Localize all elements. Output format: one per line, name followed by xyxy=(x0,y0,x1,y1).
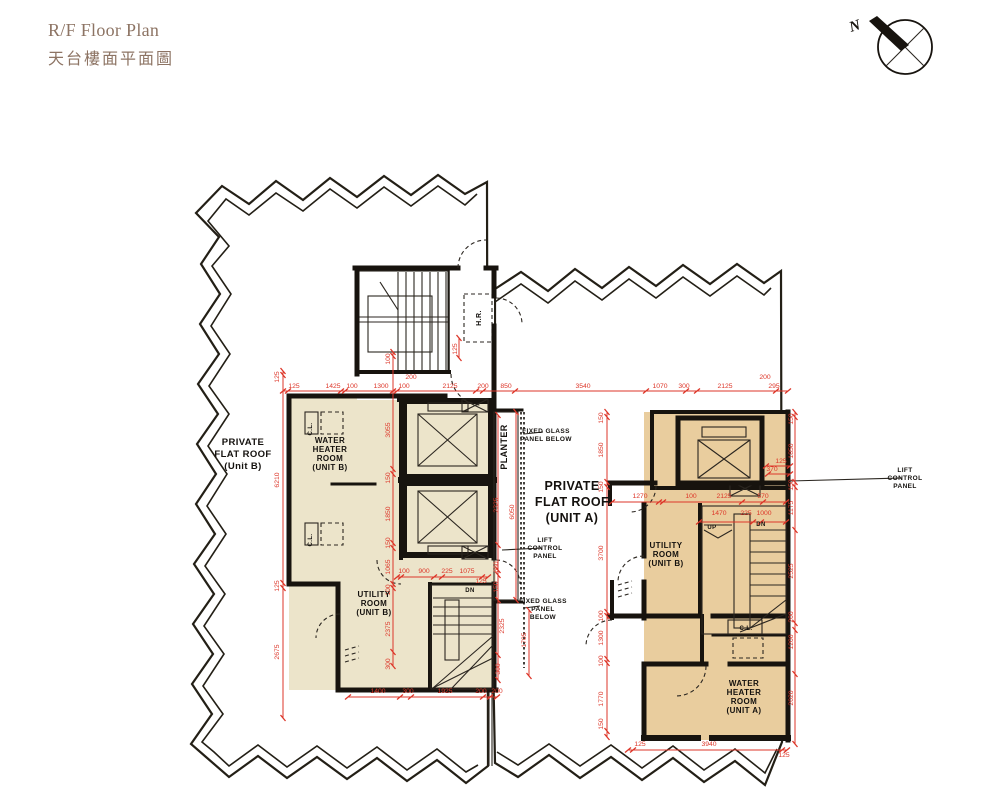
label-fixed-glass-bottom: FIXED GLASSPANELBELOW xyxy=(519,598,567,621)
dim-text: 150 xyxy=(788,479,795,491)
dim-text: 125 xyxy=(475,578,487,585)
dim-text: 100 xyxy=(385,353,392,365)
floor-plan-drawing: N xyxy=(0,0,996,805)
dim-text: 370 xyxy=(766,466,778,473)
dim-text: 2020 xyxy=(788,690,795,705)
dim-text: 1425 xyxy=(325,383,340,390)
dim-text: 125 xyxy=(288,383,300,390)
dim-text: 2675 xyxy=(274,644,281,659)
dim-text: 2325 xyxy=(493,497,500,512)
dim-text: 225 xyxy=(740,510,752,517)
dim-text: 100 xyxy=(398,568,410,575)
north-label: N xyxy=(846,17,863,36)
dim-text: 125 xyxy=(452,343,459,355)
dim-text: 850 xyxy=(500,383,512,390)
dim-text: 3540 xyxy=(575,383,590,390)
dim-text: 100 xyxy=(346,383,358,390)
label-cl-whrb-2: C.L. xyxy=(308,534,314,547)
dim-text: 2125 xyxy=(717,383,732,390)
dim-text: 300 xyxy=(402,688,414,695)
dim-text: 200 xyxy=(491,688,503,695)
dim-text: 1300 xyxy=(373,383,388,390)
dim-text: 125 xyxy=(274,580,281,592)
dim-text: 100 xyxy=(398,383,410,390)
label-utility-room-b-left: UTILITYROOM(UNIT B) xyxy=(356,590,391,617)
dim-text: 1925 xyxy=(437,688,452,695)
dim-text: 125 xyxy=(775,458,787,465)
label-lift-control-left: LIFTCONTROLPANEL xyxy=(528,537,563,560)
dim-text: 300 xyxy=(385,658,392,670)
dim-text: 1470 xyxy=(711,510,726,517)
label-cl-whrb-1: C.L. xyxy=(308,423,314,436)
dim-text: 3940 xyxy=(701,741,716,748)
north-arrow: N xyxy=(846,16,932,74)
dim-text: 1070 xyxy=(652,383,667,390)
label-stair-up: UP xyxy=(707,525,716,531)
label-lift-control-right: LIFTCONTROLPANEL xyxy=(888,467,923,490)
label-stair-dn-left: DN xyxy=(465,588,474,594)
dim-text: 1300 xyxy=(598,630,605,645)
dim-text: 1075 xyxy=(459,568,474,575)
dim-text: 1400 xyxy=(370,688,385,695)
label-planter: PLANTER xyxy=(499,424,509,469)
drawing-title-en: R/F Floor Plan xyxy=(48,20,174,41)
floor-plan-sheet: R/F Floor Plan 天台樓面平面圖 N xyxy=(0,0,996,805)
dim-text: 1000 xyxy=(756,510,771,517)
label-water-heater-room-a: WATERHEATERROOM(UNIT A) xyxy=(727,679,762,715)
north-needle xyxy=(869,16,909,51)
dim-text: 2525 xyxy=(788,563,795,578)
dim-text: 300 xyxy=(495,663,502,675)
dim-text: 2375 xyxy=(385,621,392,636)
label-water-heater-room-b: WATERHEATERROOM(UNIT B) xyxy=(312,436,347,472)
dim-text: 125 xyxy=(778,752,790,759)
dim-text: 1850 xyxy=(598,442,605,457)
dim-text: 1270 xyxy=(632,493,647,500)
drawing-title-zh: 天台樓面平面圖 xyxy=(48,45,174,69)
dim-text: 150 xyxy=(385,472,392,484)
dim-text: 3700 xyxy=(598,545,605,560)
label-cl-unit-a: C.L. xyxy=(740,626,753,632)
dim-text: 1850 xyxy=(385,506,392,521)
label-stair-dn-right: DN xyxy=(756,522,765,528)
dim-text: 1175 xyxy=(788,500,795,515)
dim-text: 150 xyxy=(493,581,500,593)
dim-text: 2125 xyxy=(716,493,731,500)
dim-text: 200 xyxy=(475,688,487,695)
dim-text: 3055 xyxy=(385,422,392,437)
dim-text: 150 xyxy=(598,412,605,424)
drawing-title-block: R/F Floor Plan 天台樓面平面圖 xyxy=(48,20,174,69)
label-utility-room-b-right: UTILITYROOM(UNIT B) xyxy=(648,541,683,568)
dim-text: 680 xyxy=(493,561,500,573)
dim-text: 150 xyxy=(385,537,392,549)
dim-text: 100 xyxy=(598,655,605,667)
dim-text: 1200 xyxy=(788,634,795,649)
stair-lobby-unit-b xyxy=(357,270,494,400)
dim-text: 6210 xyxy=(274,472,281,487)
label-fixed-glass-top: FIXED GLASSPANEL BELOW xyxy=(520,428,572,443)
dim-text: 150 xyxy=(788,413,795,425)
dim-text: 295 xyxy=(768,383,780,390)
dim-text: 100 xyxy=(685,493,697,500)
dim-text: 125 xyxy=(634,741,646,748)
dim-text: 2325 xyxy=(499,618,506,633)
dim-text: 1065 xyxy=(385,559,392,574)
dim-text: 900 xyxy=(418,568,430,575)
dim-text: 200 xyxy=(477,383,489,390)
label-private-flat-roof-a: PRIVATEFLAT ROOF(UNIT A) xyxy=(535,479,609,525)
dim-text: 300 xyxy=(678,383,690,390)
dim-text: 225 xyxy=(441,568,453,575)
dim-text: 150 xyxy=(598,718,605,730)
right-building-floor xyxy=(644,412,788,740)
dim-text: 200 xyxy=(759,374,771,381)
dim-text: 570 xyxy=(757,493,769,500)
dim-text: 1850 xyxy=(788,443,795,458)
label-hose-reel: H.R. xyxy=(476,310,483,326)
dim-text: 200 xyxy=(788,611,795,623)
dim-text: 6050 xyxy=(509,504,516,519)
dim-text: 100 xyxy=(598,610,605,622)
dim-text: 1770 xyxy=(598,691,605,706)
dim-text: 200 xyxy=(405,374,417,381)
dim-text: 1705 xyxy=(521,632,528,647)
dim-text: 2125 xyxy=(442,383,457,390)
dim-text: 125 xyxy=(274,371,281,383)
